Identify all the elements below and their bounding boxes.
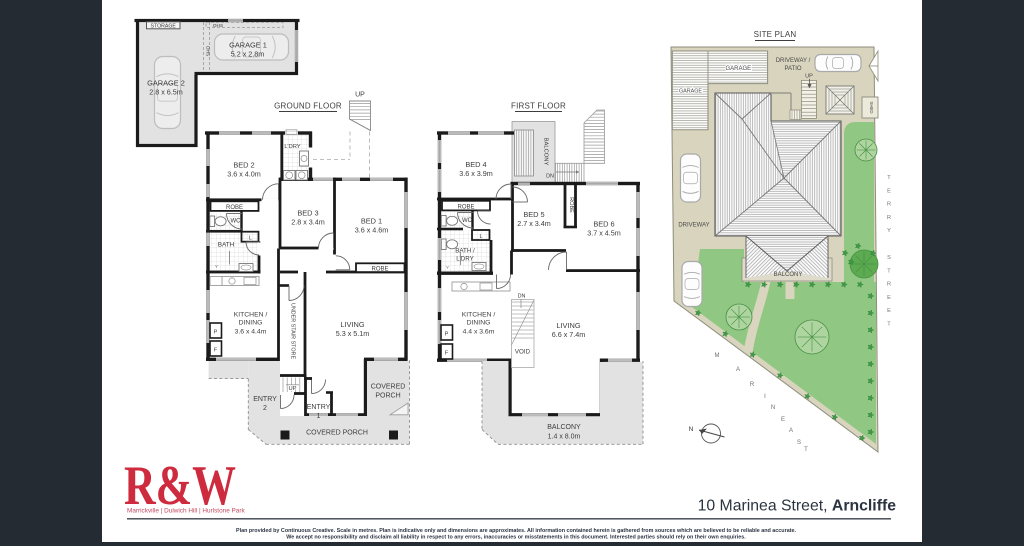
svg-text:BALCONY: BALCONY	[543, 138, 549, 166]
svg-text:We accept no responsibility an: We accept no responsibility and disclaim…	[286, 534, 746, 540]
svg-text:ROBE: ROBE	[457, 204, 474, 210]
svg-text:T: T	[804, 447, 808, 453]
svg-text:N: N	[689, 426, 694, 433]
svg-text:L: L	[479, 234, 482, 240]
svg-text:BATH /: BATH /	[455, 248, 475, 255]
svg-text:COVERED: COVERED	[371, 384, 406, 391]
svg-text:S: S	[887, 255, 891, 261]
svg-text:E: E	[887, 308, 891, 314]
svg-text:A: A	[736, 367, 740, 373]
svg-text:LIVING: LIVING	[556, 321, 580, 330]
svg-text:E: E	[887, 295, 891, 301]
svg-text:10 Marinea Street, Arncliffe: 10 Marinea Street, Arncliffe	[698, 498, 897, 515]
svg-text:BED 1: BED 1	[361, 217, 382, 226]
svg-text:DN: DN	[546, 174, 554, 180]
svg-text:3.6 x 4.4m: 3.6 x 4.4m	[235, 329, 267, 336]
svg-text:N: N	[771, 405, 775, 411]
svg-text:Marrickville | Dulwich Hill |: Marrickville | Dulwich Hill | Hurlstone …	[127, 508, 245, 515]
svg-text:4.4 x 3.6m: 4.4 x 3.6m	[463, 329, 495, 336]
svg-text:3.7 x 4.5m: 3.7 x 4.5m	[587, 229, 621, 238]
svg-text:L’DRY: L’DRY	[284, 144, 300, 150]
svg-text:3.6 x 4.0m: 3.6 x 4.0m	[227, 170, 261, 179]
svg-text:WC: WC	[462, 218, 473, 224]
svg-text:BED 5: BED 5	[523, 210, 544, 219]
svg-text:6.6 x 7.4m: 6.6 x 7.4m	[552, 330, 586, 339]
svg-text:BATH: BATH	[218, 242, 235, 249]
svg-text:GROUND FLOOR: GROUND FLOOR	[274, 102, 342, 111]
svg-text:R: R	[887, 215, 891, 221]
svg-text:S: S	[797, 440, 801, 446]
svg-text:F: F	[214, 348, 218, 354]
svg-text:E: E	[781, 417, 785, 423]
svg-text:PATIO: PATIO	[784, 66, 801, 72]
svg-text:R: R	[750, 382, 755, 388]
svg-text:P: P	[445, 332, 449, 338]
svg-text:COVERED PORCH: COVERED PORCH	[306, 430, 368, 437]
svg-text:KITCHEN /: KITCHEN /	[462, 312, 496, 319]
svg-text:UP: UP	[288, 386, 296, 392]
svg-text:5.2 x 2.8m: 5.2 x 2.8m	[231, 50, 265, 59]
svg-text:BED 2: BED 2	[233, 161, 254, 170]
svg-text:5.3 x 5.1m: 5.3 x 5.1m	[336, 329, 370, 338]
svg-text:SITE PLAN: SITE PLAN	[754, 30, 797, 39]
svg-text:ROBE: ROBE	[568, 197, 574, 213]
svg-text:BALCONY: BALCONY	[547, 424, 581, 431]
svg-text:UP: UP	[355, 92, 365, 99]
svg-text:BALCONY: BALCONY	[774, 272, 803, 278]
svg-text:ROBE: ROBE	[226, 205, 243, 211]
svg-text:2.7 x 3.4m: 2.7 x 3.4m	[517, 219, 551, 228]
svg-text:GARAGE 1: GARAGE 1	[229, 41, 267, 50]
svg-text:GARAGE 2: GARAGE 2	[147, 79, 185, 88]
svg-text:L’DRY: L’DRY	[456, 256, 473, 263]
svg-text:DRIVEWAY: DRIVEWAY	[678, 223, 709, 229]
svg-text:BED 3: BED 3	[297, 209, 318, 218]
svg-text:E: E	[887, 188, 891, 194]
svg-text:1.4 x 8.0m: 1.4 x 8.0m	[548, 434, 581, 441]
svg-text:P: P	[214, 330, 218, 336]
svg-text:DINING: DINING	[467, 320, 491, 327]
svg-text:R: R	[887, 282, 891, 288]
svg-text:KITCHEN /: KITCHEN /	[234, 312, 268, 319]
svg-text:DN: DN	[518, 294, 526, 300]
svg-text:DRIVEWAY /: DRIVEWAY /	[776, 58, 811, 64]
svg-text:FIRST FLOOR: FIRST FLOOR	[511, 102, 566, 111]
svg-text:GARAGE: GARAGE	[725, 66, 751, 72]
svg-text:BED 4: BED 4	[465, 160, 486, 169]
svg-text:UNDER STAIR STORE: UNDER STAIR STORE	[290, 303, 296, 360]
svg-text:2.8 x 6.5m: 2.8 x 6.5m	[149, 88, 183, 97]
svg-text:SHED: SHED	[869, 101, 874, 113]
svg-text:WC: WC	[231, 219, 242, 225]
svg-text:F: F	[445, 351, 449, 357]
svg-text:T: T	[887, 175, 891, 181]
svg-text:2: 2	[263, 405, 267, 412]
svg-text:2.8 x 3.4m: 2.8 x 3.4m	[291, 218, 325, 227]
svg-text:OHS: OHS	[213, 23, 223, 29]
svg-text:ENTRY: ENTRY	[253, 396, 277, 403]
svg-text:VOID: VOID	[515, 349, 531, 356]
svg-text:3.6 x 3.9m: 3.6 x 3.9m	[459, 169, 493, 178]
svg-text:OHS: OHS	[205, 46, 211, 56]
svg-text:3.6 x 4.6m: 3.6 x 4.6m	[355, 226, 389, 235]
svg-text:Y: Y	[887, 228, 891, 234]
svg-text:Plan provided by Continuous Cr: Plan provided by Continuous Creative. Sc…	[236, 528, 796, 534]
svg-text:UP: UP	[805, 74, 813, 80]
svg-text:LIVING: LIVING	[340, 320, 364, 329]
svg-text:DINING: DINING	[239, 320, 263, 327]
svg-text:STORAGE: STORAGE	[151, 23, 177, 29]
svg-text:BED 6: BED 6	[593, 220, 614, 229]
svg-text:A: A	[789, 428, 793, 434]
svg-text:R: R	[887, 202, 891, 208]
svg-text:L: L	[249, 236, 252, 242]
svg-text:ENTRY: ENTRY	[307, 404, 331, 411]
svg-text:M: M	[715, 353, 720, 359]
svg-text:ROBE: ROBE	[371, 267, 388, 273]
svg-text:PORCH: PORCH	[375, 393, 400, 400]
svg-text:1: 1	[317, 413, 321, 420]
svg-text:GARAGE: GARAGE	[679, 89, 702, 95]
svg-text:T: T	[887, 268, 891, 274]
svg-text:T: T	[887, 322, 891, 328]
